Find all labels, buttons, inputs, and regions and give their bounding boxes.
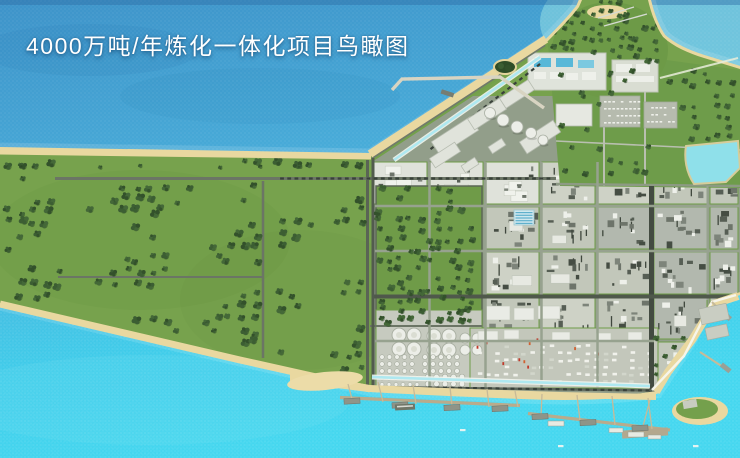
plant-equipment xyxy=(512,258,516,262)
plant-cell xyxy=(598,252,651,294)
plant-tower xyxy=(554,168,555,175)
tree xyxy=(152,210,156,214)
tree xyxy=(154,214,158,218)
tree xyxy=(452,287,454,289)
pipe-rack xyxy=(638,389,642,391)
plant-tower xyxy=(551,187,552,193)
tree xyxy=(405,185,408,188)
tree xyxy=(609,75,611,77)
small-tank xyxy=(434,381,440,387)
cooling-cell xyxy=(516,220,533,221)
plant-building xyxy=(674,215,682,221)
container xyxy=(604,359,609,362)
tree xyxy=(438,189,440,191)
tree xyxy=(651,26,653,28)
small-tank xyxy=(394,383,398,387)
tree xyxy=(592,29,594,31)
tree xyxy=(619,45,621,47)
tree xyxy=(127,259,129,261)
tree xyxy=(125,257,127,259)
tree xyxy=(359,205,361,207)
tree xyxy=(583,171,586,174)
plant-building xyxy=(668,279,672,283)
tree xyxy=(470,237,473,240)
tree xyxy=(707,82,709,84)
tree xyxy=(609,171,611,173)
container xyxy=(549,366,554,369)
plant-building xyxy=(583,226,588,230)
pipe-rack xyxy=(352,177,356,179)
tree xyxy=(34,166,37,169)
tree xyxy=(387,323,390,326)
tree xyxy=(419,217,422,220)
car xyxy=(621,101,624,103)
berth-platform xyxy=(632,425,648,431)
tree xyxy=(421,220,424,223)
small-tank xyxy=(402,362,407,367)
pipe-rack xyxy=(374,177,378,179)
container xyxy=(504,373,509,376)
tree xyxy=(634,39,637,42)
tree xyxy=(31,269,35,273)
treatment-pool-2 xyxy=(556,58,573,67)
tree xyxy=(20,278,23,281)
tree xyxy=(400,283,403,286)
car xyxy=(651,121,654,123)
small-tank xyxy=(401,383,405,387)
plant-tower xyxy=(572,235,573,244)
tree xyxy=(140,166,142,168)
flare-stack xyxy=(529,342,531,345)
plant-equipment xyxy=(553,255,557,260)
plant-tower xyxy=(602,230,603,236)
car xyxy=(660,107,663,109)
tree xyxy=(282,221,285,224)
tree xyxy=(618,3,621,6)
tree xyxy=(175,201,177,203)
plant-tower xyxy=(718,215,719,225)
flare-stack xyxy=(518,358,520,361)
pipe-rack xyxy=(556,388,560,390)
small-tank xyxy=(410,355,415,360)
tree xyxy=(563,26,565,28)
car xyxy=(629,115,632,117)
tree xyxy=(356,289,358,291)
pipe-rack xyxy=(403,177,407,179)
tree xyxy=(159,208,162,211)
pipe-rack xyxy=(578,388,582,390)
tank-roof xyxy=(396,332,402,338)
tree xyxy=(212,248,215,251)
tree xyxy=(410,318,413,321)
tree xyxy=(387,259,389,261)
small-tank xyxy=(415,383,419,387)
tree xyxy=(456,264,459,267)
tree xyxy=(381,318,383,320)
plant-equipment xyxy=(615,189,623,196)
tree xyxy=(683,78,686,81)
tree xyxy=(213,331,215,333)
tree xyxy=(634,53,637,56)
plant-equipment xyxy=(666,217,674,222)
plant-equipment xyxy=(728,224,733,230)
tank-roof xyxy=(396,346,402,352)
tree xyxy=(663,354,665,356)
tree xyxy=(609,70,611,72)
container xyxy=(550,344,555,347)
tree xyxy=(7,166,10,169)
tree xyxy=(635,171,638,174)
tree xyxy=(134,262,137,265)
tree xyxy=(726,125,729,128)
tree xyxy=(389,284,392,287)
car xyxy=(612,122,615,124)
container xyxy=(603,366,608,369)
moored-vessel xyxy=(648,435,661,439)
plant-equipment xyxy=(547,270,555,272)
tree xyxy=(669,82,672,85)
tree xyxy=(571,42,574,45)
tree xyxy=(389,269,391,271)
tree xyxy=(638,47,640,49)
islet-tree-2 xyxy=(505,65,511,71)
tree xyxy=(427,291,429,293)
tree xyxy=(600,2,602,4)
car xyxy=(651,114,654,116)
tree xyxy=(228,242,231,245)
tree xyxy=(435,218,438,221)
tree xyxy=(252,242,255,245)
tree xyxy=(174,328,176,330)
tree xyxy=(585,127,587,129)
tree xyxy=(563,168,565,170)
tree xyxy=(342,290,344,292)
plant-equipment xyxy=(720,217,727,222)
tree xyxy=(30,206,33,209)
plant-tower xyxy=(518,256,519,267)
tree xyxy=(153,273,155,275)
tree xyxy=(137,193,141,197)
tree xyxy=(437,317,440,320)
tree xyxy=(36,234,39,237)
plant-tower xyxy=(684,302,685,308)
tree xyxy=(559,123,561,125)
car xyxy=(647,121,650,123)
tree xyxy=(165,319,168,322)
plant-warehouse xyxy=(552,235,566,243)
plant-equipment xyxy=(725,229,729,234)
tree xyxy=(33,163,36,166)
tree xyxy=(715,133,717,135)
tree xyxy=(230,246,233,249)
car xyxy=(672,121,675,123)
tree xyxy=(36,203,39,206)
cooling-cell xyxy=(516,223,533,224)
tree xyxy=(408,278,411,281)
small-tank xyxy=(402,355,407,360)
small-tank xyxy=(423,355,428,360)
tree xyxy=(375,209,378,212)
tree xyxy=(469,321,471,323)
plant-tower xyxy=(611,316,612,327)
admin-building-2 xyxy=(636,64,650,72)
plant-equipment xyxy=(522,195,526,198)
flare-stack xyxy=(502,362,504,365)
plant-equipment xyxy=(569,284,576,290)
tree xyxy=(608,40,610,42)
tree xyxy=(87,206,90,209)
tree xyxy=(696,127,699,130)
small-tank xyxy=(410,369,415,374)
tree xyxy=(128,269,131,272)
aerial-view: 4000万吨/年炼化一体化项目鸟瞰图 xyxy=(0,0,740,458)
pipe-rack xyxy=(359,177,363,179)
tree xyxy=(642,169,645,172)
tree xyxy=(22,166,25,169)
tree xyxy=(243,200,245,202)
tree xyxy=(616,29,618,31)
pipe-rack xyxy=(518,177,522,179)
tree xyxy=(467,280,469,282)
tree xyxy=(457,278,459,280)
tree xyxy=(35,230,38,233)
tree xyxy=(47,285,51,289)
tree xyxy=(428,258,430,260)
tree xyxy=(653,39,655,41)
pipe-rack xyxy=(381,177,385,179)
tree xyxy=(112,273,115,276)
tree xyxy=(652,28,654,30)
tree xyxy=(418,268,420,270)
plant-tower xyxy=(714,278,715,289)
container xyxy=(631,351,636,354)
car xyxy=(664,114,667,116)
pipe-rack xyxy=(473,387,477,389)
tree xyxy=(44,292,47,295)
tree xyxy=(706,79,708,81)
container xyxy=(559,360,564,363)
tank-roof xyxy=(411,332,417,338)
pipe-rack xyxy=(539,177,543,179)
tree xyxy=(467,288,470,291)
tree xyxy=(692,86,695,89)
tree xyxy=(256,293,259,296)
tree xyxy=(551,44,554,47)
plant-building xyxy=(566,213,571,217)
plant-tower xyxy=(691,189,692,196)
plant-equipment xyxy=(680,227,686,230)
tank-roof xyxy=(411,346,417,352)
tree xyxy=(390,288,393,291)
tree xyxy=(673,347,675,349)
car xyxy=(621,108,624,110)
tree xyxy=(626,33,628,35)
tree xyxy=(609,9,611,11)
tree xyxy=(388,267,390,269)
tree xyxy=(277,288,280,291)
tree xyxy=(149,286,152,289)
tree xyxy=(611,48,613,50)
tree xyxy=(693,117,695,119)
tree xyxy=(597,102,599,104)
tree xyxy=(704,74,706,76)
tree xyxy=(718,117,720,119)
plant-equipment xyxy=(625,188,629,194)
tree xyxy=(226,316,229,319)
tree xyxy=(400,234,403,237)
container xyxy=(613,353,618,356)
tree xyxy=(416,265,418,267)
tree xyxy=(436,245,438,247)
tree xyxy=(460,241,463,244)
tree xyxy=(440,289,443,292)
tree xyxy=(655,48,657,50)
container xyxy=(495,352,500,355)
tree xyxy=(456,276,458,278)
tree xyxy=(382,308,384,310)
tree xyxy=(205,323,208,326)
tree xyxy=(210,244,213,247)
small-tank xyxy=(395,362,400,367)
tree xyxy=(455,248,458,251)
cooling-cell xyxy=(516,212,533,213)
small-tank xyxy=(423,362,428,367)
plant-equipment xyxy=(639,242,645,246)
small-tank xyxy=(380,369,385,374)
car xyxy=(621,122,624,124)
tree xyxy=(459,317,462,320)
tree xyxy=(664,356,666,358)
tree xyxy=(728,133,730,135)
tree xyxy=(220,167,222,169)
plant-equipment xyxy=(566,230,574,233)
plant-equipment xyxy=(520,234,524,239)
plant-building xyxy=(556,104,592,126)
tree xyxy=(559,72,561,74)
tree xyxy=(618,55,620,57)
tree xyxy=(472,240,475,243)
plant-building xyxy=(563,211,567,217)
tree xyxy=(138,189,140,191)
tree xyxy=(148,195,151,198)
tree xyxy=(175,331,178,334)
small-boat xyxy=(558,445,564,447)
tree xyxy=(727,118,729,120)
tree xyxy=(457,308,460,311)
page-title: 4000万吨/年炼化一体化项目鸟瞰图 xyxy=(26,27,410,61)
small-boat xyxy=(460,429,466,431)
tree xyxy=(345,220,348,223)
tree xyxy=(706,137,708,139)
tree xyxy=(583,36,585,38)
cooling-cell xyxy=(516,217,533,218)
tree xyxy=(570,21,572,23)
tree xyxy=(16,293,19,296)
pipe-rack xyxy=(503,387,507,389)
plant-equipment xyxy=(607,305,610,311)
moored-vessel xyxy=(628,432,644,437)
pipe-rack xyxy=(563,388,567,390)
berth-platform xyxy=(532,413,548,419)
plant-equipment xyxy=(504,188,508,190)
plant-equipment xyxy=(667,270,672,273)
tree xyxy=(437,279,439,281)
pipe-rack xyxy=(571,388,575,390)
tree xyxy=(644,28,647,31)
plant-equipment xyxy=(620,222,627,226)
container xyxy=(585,373,590,376)
tree xyxy=(598,104,600,106)
tree xyxy=(46,295,49,298)
car xyxy=(633,122,636,124)
plant-equipment xyxy=(667,241,673,248)
tree xyxy=(380,299,383,302)
plant-equipment xyxy=(721,211,729,216)
tree xyxy=(570,145,572,147)
tree xyxy=(407,188,410,191)
small-tank xyxy=(447,362,452,367)
car xyxy=(633,115,636,117)
plant-equipment xyxy=(627,270,631,275)
tree xyxy=(356,196,360,200)
tree xyxy=(408,298,410,300)
container xyxy=(586,353,591,356)
pipe-rack xyxy=(608,389,612,391)
plant-equipment xyxy=(585,264,588,271)
car xyxy=(612,108,615,110)
plant-equipment xyxy=(503,285,509,290)
container xyxy=(640,373,645,376)
tree xyxy=(683,338,685,340)
pipe-rack xyxy=(302,177,306,179)
tree xyxy=(449,313,451,315)
tree xyxy=(427,238,430,241)
pipe-rack xyxy=(280,177,284,179)
tree xyxy=(381,302,384,305)
tree xyxy=(353,340,357,344)
tree xyxy=(281,245,284,248)
container xyxy=(630,367,635,370)
car xyxy=(608,108,611,110)
tree xyxy=(99,165,101,167)
container xyxy=(566,373,571,376)
plant-equipment xyxy=(637,261,642,267)
tree xyxy=(628,44,631,47)
tree xyxy=(431,248,434,251)
tree xyxy=(345,279,348,282)
tree xyxy=(96,279,99,282)
tree xyxy=(429,260,431,262)
tree xyxy=(151,253,153,255)
flare-stack xyxy=(527,366,529,369)
tree xyxy=(619,161,621,163)
tree xyxy=(609,90,611,92)
tree xyxy=(177,203,179,205)
plant-equipment xyxy=(731,194,738,196)
tree xyxy=(684,81,687,84)
tree xyxy=(218,317,221,320)
plant-equipment xyxy=(637,317,642,320)
car xyxy=(617,122,620,124)
plant-building xyxy=(714,278,720,284)
pipe-rack xyxy=(532,177,536,179)
container xyxy=(504,358,509,361)
plant-building xyxy=(662,269,666,273)
tree xyxy=(553,47,556,50)
tree xyxy=(571,23,573,25)
tree xyxy=(397,216,400,219)
tree xyxy=(187,185,190,188)
